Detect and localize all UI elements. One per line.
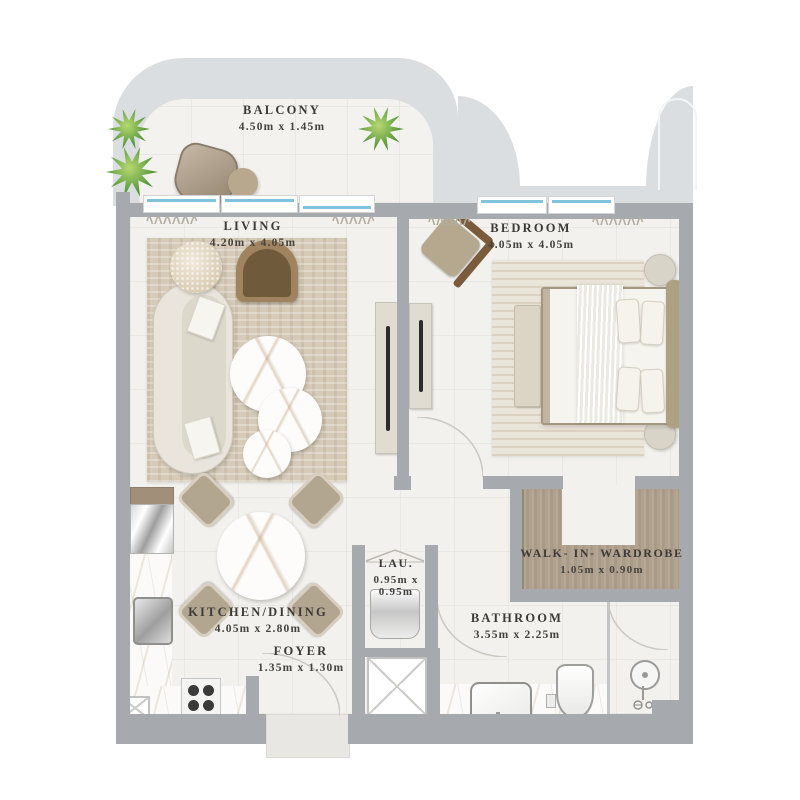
accent-chair-seat bbox=[243, 249, 291, 297]
living-window bbox=[143, 195, 220, 213]
shower-door-arc bbox=[608, 598, 668, 650]
foyer-closet bbox=[367, 657, 427, 716]
tv-icon bbox=[419, 320, 423, 393]
wall-living-bedroom-partition bbox=[397, 217, 409, 477]
wall bbox=[427, 648, 440, 716]
room-dims: 4.05m x 4.05m bbox=[488, 239, 575, 251]
accent-chair bbox=[236, 240, 298, 302]
room-dims: 0.95m bbox=[373, 586, 418, 598]
stove bbox=[181, 678, 221, 718]
room-label-living: LIVING 4.20m x 4.05m bbox=[210, 219, 297, 249]
room-label-kitchen: KITCHEN/DINING 4.05m x 2.80m bbox=[188, 605, 328, 635]
room-label-foyer: FOYER 1.35m x 1.30m bbox=[258, 644, 345, 674]
fridge bbox=[130, 504, 174, 554]
room-name: BATHROOM bbox=[471, 611, 563, 626]
bedroom-window bbox=[548, 196, 615, 214]
wall bbox=[116, 714, 266, 744]
living-sliding-door bbox=[299, 195, 375, 213]
floor-plan: BALCONY 4.50m x 1.45m LIVING 4.20m x 4.0… bbox=[0, 0, 800, 800]
curtain-icon bbox=[592, 213, 644, 225]
room-name: BEDROOM bbox=[488, 221, 575, 236]
room-dims: 3.55m x 2.25m bbox=[471, 629, 563, 641]
shower-head-icon bbox=[630, 660, 660, 690]
room-dims: 1.05m x 0.90m bbox=[520, 564, 683, 576]
room-dims: 0.95m x bbox=[373, 574, 418, 586]
room-label-bedroom: BEDROOM 4.05m x 4.05m bbox=[488, 221, 575, 251]
room-label-balcony: BALCONY 4.50m x 1.45m bbox=[239, 103, 326, 133]
entry-threshold bbox=[266, 714, 350, 758]
curtain-icon bbox=[428, 213, 470, 225]
room-dims: 4.05m x 2.80m bbox=[188, 623, 328, 635]
pillow bbox=[615, 366, 641, 411]
bed bbox=[541, 287, 673, 425]
room-name: FOYER bbox=[258, 644, 345, 659]
burner-icon bbox=[188, 685, 199, 696]
wall bbox=[425, 545, 438, 656]
room-dims: 4.50m x 1.45m bbox=[239, 121, 326, 133]
neighbour-arch-outline bbox=[658, 98, 697, 190]
wall bbox=[510, 476, 522, 602]
wall bbox=[635, 476, 693, 489]
room-name: LAU. bbox=[373, 556, 418, 571]
pillow bbox=[615, 298, 641, 343]
wall bbox=[352, 545, 365, 716]
wall bbox=[652, 700, 693, 716]
bed-footboard bbox=[543, 289, 550, 423]
curtain-icon bbox=[332, 212, 374, 224]
bedroom-door-arc bbox=[417, 417, 483, 477]
kitchen-sink bbox=[133, 597, 173, 645]
wall bbox=[394, 476, 411, 490]
burner-icon bbox=[203, 700, 214, 711]
room-label-laundry: LAU. 0.95m x 0.95m bbox=[373, 556, 418, 598]
room-dims: 4.20m x 4.05m bbox=[210, 237, 297, 249]
neighbour-curve-left bbox=[458, 96, 520, 186]
wall bbox=[246, 676, 259, 716]
pillow bbox=[640, 300, 665, 345]
tv-icon bbox=[386, 326, 390, 431]
room-label-wardrobe: WALK- IN- WARDROBE 1.05m x 0.90m bbox=[520, 546, 683, 576]
pillow bbox=[640, 368, 665, 413]
room-name: LIVING bbox=[210, 219, 297, 234]
dining-table bbox=[217, 512, 305, 600]
room-name: BALCONY bbox=[239, 103, 326, 118]
wall bbox=[483, 476, 563, 489]
coffee-table bbox=[243, 430, 291, 478]
toilet bbox=[556, 664, 594, 718]
burner-icon bbox=[188, 700, 199, 711]
room-name: WALK- IN- WARDROBE bbox=[520, 546, 683, 561]
wall bbox=[348, 714, 693, 744]
bedroom-bench bbox=[514, 305, 541, 407]
wall bbox=[510, 589, 693, 602]
curtain-icon bbox=[146, 212, 198, 224]
wall bbox=[679, 203, 693, 744]
tv-console-bedroom bbox=[409, 303, 432, 409]
wall bbox=[116, 192, 130, 744]
burner-icon bbox=[203, 685, 214, 696]
bedroom-window bbox=[477, 196, 547, 214]
balcony-side-table bbox=[228, 168, 258, 198]
room-dims: 1.35m x 1.30m bbox=[258, 662, 345, 674]
room-name: KITCHEN/DINING bbox=[188, 605, 328, 620]
sofa bbox=[153, 282, 233, 474]
wardrobe-opening bbox=[562, 485, 635, 545]
flush-plate-icon bbox=[546, 694, 556, 708]
room-label-bathroom: BATHROOM 3.55m x 2.25m bbox=[471, 611, 563, 641]
living-window bbox=[221, 195, 298, 213]
